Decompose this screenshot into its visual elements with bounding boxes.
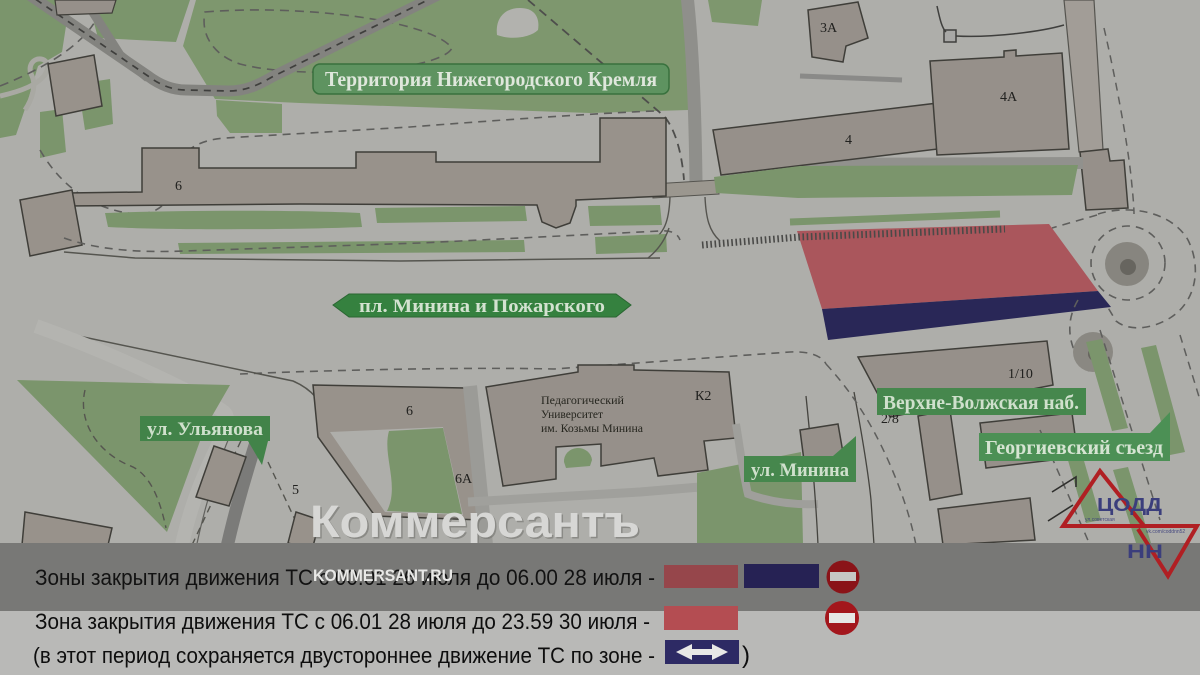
- svg-text:НН: НН: [1127, 542, 1163, 563]
- svg-text:6: 6: [175, 179, 182, 194]
- svg-text:Георгиевский съезд: Георгиевский съезд: [985, 437, 1163, 459]
- svg-text:ул. Минина: ул. Минина: [751, 460, 849, 481]
- svg-text:): ): [742, 642, 750, 669]
- svg-text:Верхне-Волжская наб.: Верхне-Волжская наб.: [883, 392, 1079, 414]
- svg-text:им. Козьмы Минина: им. Козьмы Минина: [541, 421, 644, 435]
- svg-text:Педагогический: Педагогический: [541, 393, 625, 407]
- svg-text:3А: 3А: [820, 21, 838, 36]
- svg-text:Зона закрытия движения ТС с 06: Зона закрытия движения ТС с 06.01 28 июл…: [35, 609, 650, 634]
- svg-text:Территория Нижегородского Крем: Территория Нижегородского Кремля: [325, 67, 657, 91]
- svg-text:пл. Минина и Пожарского: пл. Минина и Пожарского: [359, 296, 605, 317]
- svg-text:ЦОДД: ЦОДД: [1097, 495, 1162, 515]
- svg-text:4А: 4А: [1000, 90, 1018, 105]
- svg-text:6: 6: [406, 404, 413, 419]
- svg-text:5: 5: [292, 483, 299, 498]
- svg-text:Университет: Университет: [541, 407, 604, 421]
- svg-text:6А: 6А: [455, 472, 473, 487]
- svg-text:(в этот период сохраняется дву: (в этот период сохраняется двустороннее …: [33, 643, 655, 668]
- svg-text:Коммерсантъ: Коммерсантъ: [310, 496, 640, 547]
- svg-text:4: 4: [845, 133, 852, 148]
- svg-text:ул.советская: ул.советская: [1085, 517, 1115, 523]
- svg-text:К2: К2: [695, 389, 711, 404]
- svg-text:vk.com/coddnn52: vk.com/coddnn52: [1146, 529, 1185, 535]
- svg-text:1/10: 1/10: [1008, 367, 1033, 382]
- svg-text:KOMMERSANT.RU: KOMMERSANT.RU: [313, 566, 453, 585]
- svg-text:ул. Ульянова: ул. Ульянова: [147, 419, 264, 440]
